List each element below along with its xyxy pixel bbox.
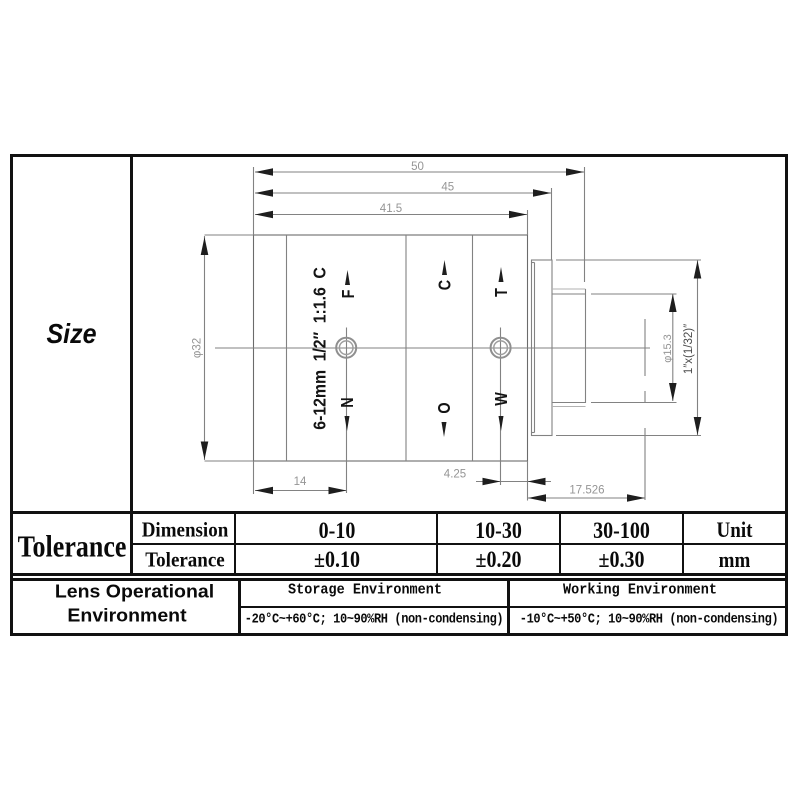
svg-text:41.5: 41.5 [380,203,402,215]
svg-text:6-12mm 1/2″ 1:1.6 C: 6-12mm 1/2″ 1:1.6 C [310,267,330,429]
svg-text:4.25: 4.25 [444,469,466,481]
svg-text:N: N [338,397,358,407]
svg-text:17.526: 17.526 [569,485,604,497]
svg-text:50: 50 [411,161,424,173]
svg-text:C: C [435,280,455,291]
svg-text:14: 14 [294,476,307,488]
svg-text:φ15.3: φ15.3 [662,334,674,363]
svg-text:φ32: φ32 [192,338,204,358]
svg-text:T: T [492,288,512,297]
svg-text:45: 45 [441,182,454,194]
svg-text:W: W [492,392,512,406]
svg-text:F: F [339,290,359,299]
svg-text:1″x(1/32)″: 1″x(1/32)″ [683,324,695,374]
svg-text:O: O [435,402,455,413]
